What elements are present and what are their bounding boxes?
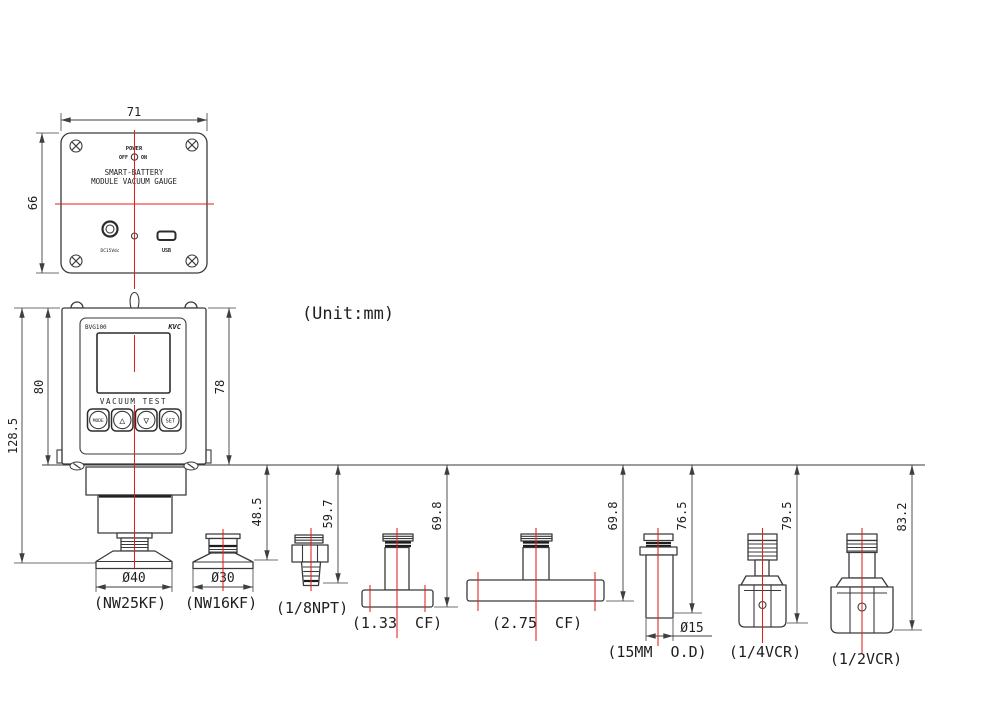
button-down-glyph: ▽	[143, 416, 149, 427]
button-set-label: SET	[166, 418, 175, 424]
hex-section	[292, 545, 328, 562]
dim-body-height: 80	[32, 380, 46, 394]
label-nw25kf: (NW25KF)	[94, 594, 166, 612]
label-nw16kf: (NW16KF)	[185, 594, 257, 612]
screen-caption: VACUUM TEST	[100, 397, 167, 406]
dim-133cf-height: 69.8	[430, 502, 444, 531]
usb-port-icon	[158, 232, 176, 241]
unit-note: (Unit:mm)	[302, 304, 394, 324]
brand-logo: KVC	[167, 323, 181, 331]
dc-jack-label: DC15Vdc	[101, 248, 120, 254]
button-down[interactable]: ▽	[136, 409, 158, 431]
model-label: BVG100	[85, 324, 107, 331]
label-14vcr: (1/4VCR)	[729, 643, 801, 661]
button-set[interactable]: SET	[160, 409, 182, 431]
power-on-label: ON	[141, 155, 147, 161]
lcd-screen	[97, 333, 170, 393]
vacuum-gauge-dimension-drawing: POWER OFF ON SMART-BATTERY MODULE VACUUM…	[0, 0, 987, 713]
od-tube	[646, 555, 673, 618]
technical-drawing-page: POWER OFF ON SMART-BATTERY MODULE VACUUM…	[0, 0, 987, 713]
label-12vcr: (1/2VCR)	[830, 650, 902, 668]
button-up-glyph: △	[119, 416, 125, 427]
dim-npt-height: 59.7	[321, 500, 335, 529]
dim-275cf-height: 69.8	[606, 502, 620, 531]
label-275cf: (2.75 CF)	[492, 614, 582, 632]
dim-panel-height: 78	[213, 380, 227, 394]
dim-nw25kf-diameter: Ø40	[122, 571, 145, 586]
dim-back-height: 66	[26, 196, 40, 210]
button-up[interactable]: △	[112, 409, 134, 431]
power-off-label: OFF	[119, 155, 128, 161]
label-15mm-od: (15MM O.D)	[607, 643, 706, 661]
top-screw-icon	[71, 302, 83, 308]
dim-back-width: 71	[127, 105, 141, 119]
dim-nw25kf-height: 48.5	[250, 498, 264, 527]
dim-total-height: 128.5	[6, 418, 20, 454]
button-mode[interactable]: MODE	[88, 409, 110, 431]
usb-label: USB	[162, 248, 171, 254]
button-mode-label: MODE	[93, 418, 104, 424]
label-18npt: (1/8NPT)	[276, 599, 348, 617]
dim-15mm-height: 76.5	[675, 502, 689, 531]
dim-12vcr-height: 83.2	[895, 503, 909, 532]
top-screw-icon	[185, 302, 197, 308]
dim-15mm-diameter: Ø15	[680, 621, 703, 636]
dc-jack-icon	[103, 222, 118, 237]
dim-14vcr-height: 79.5	[780, 502, 794, 531]
